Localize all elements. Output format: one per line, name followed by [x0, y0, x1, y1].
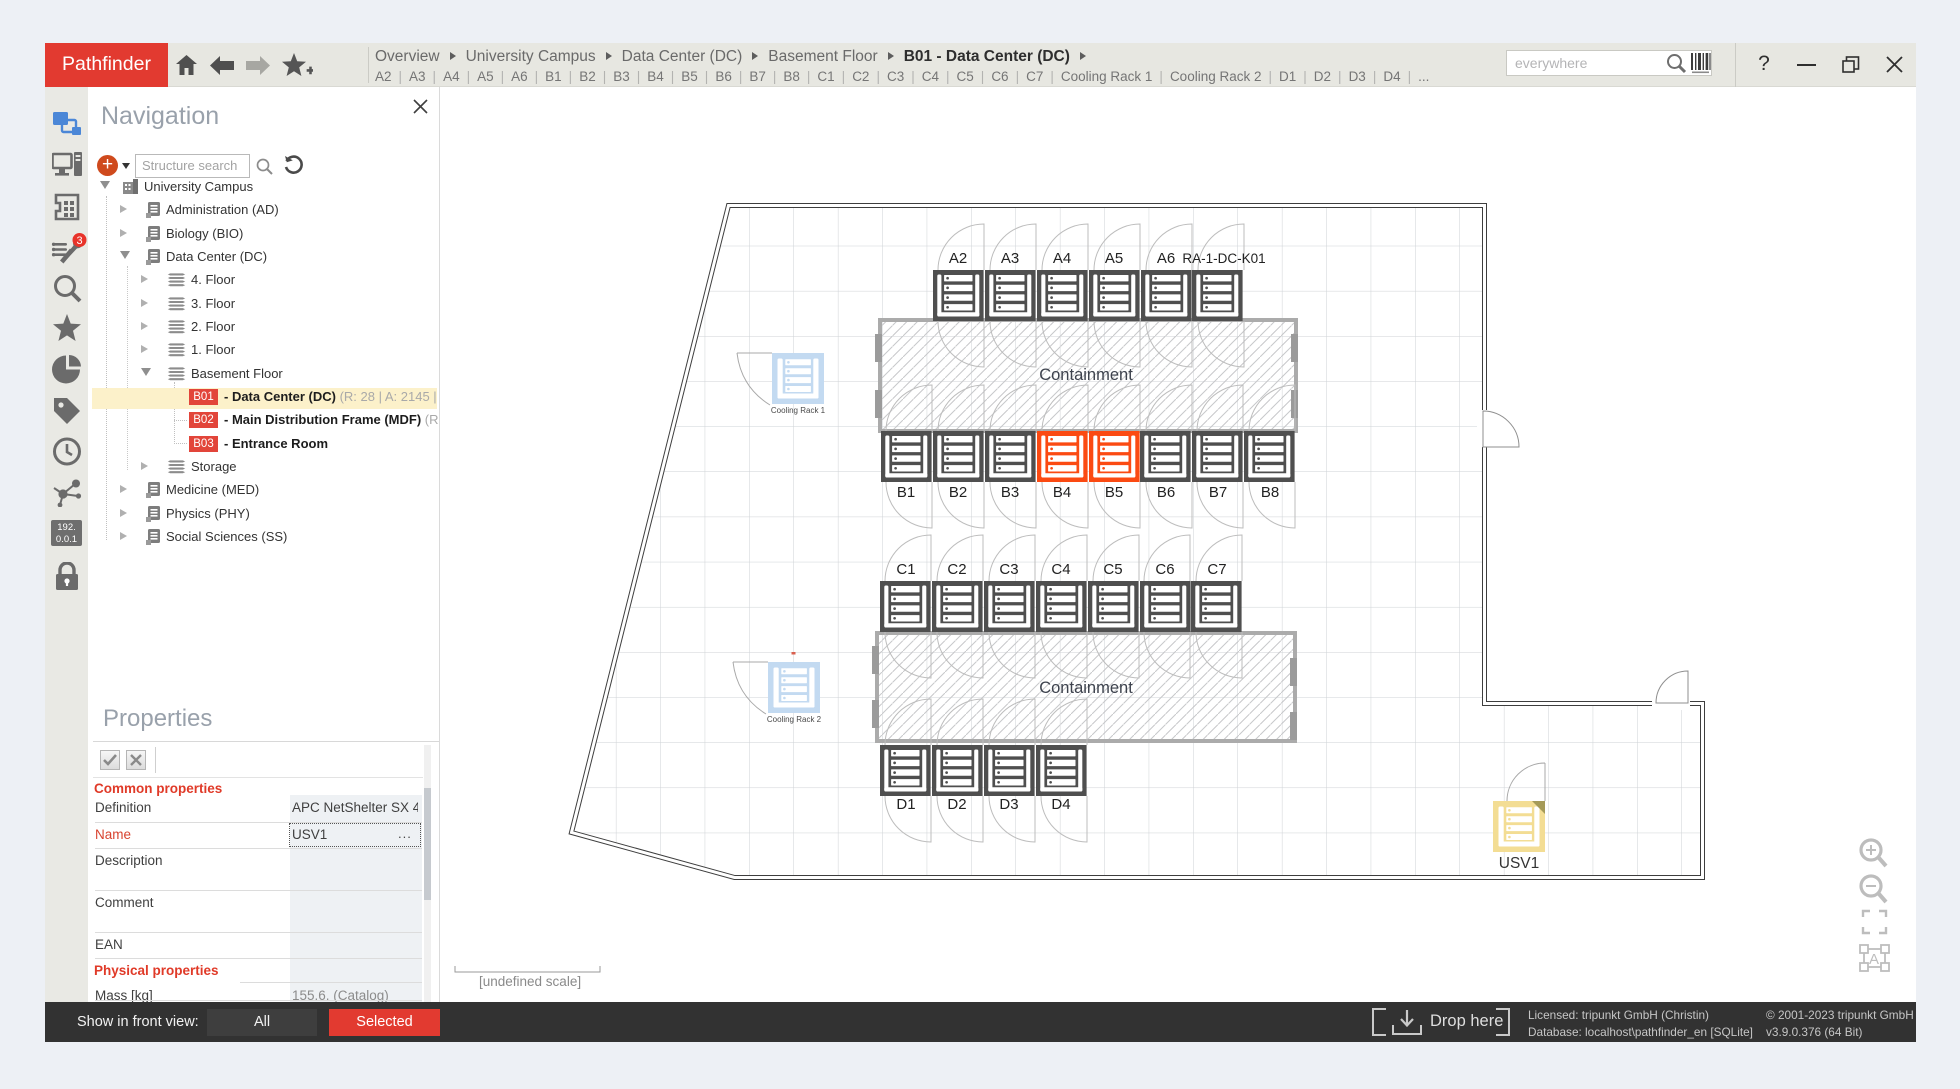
svg-text:B7: B7 — [1209, 484, 1227, 501]
svg-text:C4: C4 — [1051, 561, 1070, 578]
svg-text:C2: C2 — [947, 561, 966, 578]
svg-text:A: A — [1869, 951, 1879, 968]
svg-text:A2: A2 — [949, 250, 967, 267]
svg-text:Cooling Rack 2: Cooling Rack 2 — [767, 715, 822, 724]
svg-text:B5: B5 — [1105, 484, 1123, 501]
svg-text:A4: A4 — [1053, 250, 1071, 267]
svg-text:Cooling Rack 1: Cooling Rack 1 — [771, 406, 826, 415]
svg-text:C5: C5 — [1103, 561, 1122, 578]
svg-text:B8: B8 — [1261, 484, 1279, 501]
svg-text:B6: B6 — [1157, 484, 1175, 501]
svg-text:A6: A6 — [1157, 250, 1175, 267]
svg-text:[undefined scale]: [undefined scale] — [479, 974, 581, 989]
svg-text:Containment: Containment — [1039, 679, 1133, 697]
svg-text:C6: C6 — [1155, 561, 1174, 578]
svg-text:C3: C3 — [999, 561, 1018, 578]
svg-text:B4: B4 — [1053, 484, 1071, 501]
svg-text:3: 3 — [76, 235, 82, 247]
svg-text:A3: A3 — [1001, 250, 1019, 267]
svg-text:B3: B3 — [1001, 484, 1019, 501]
svg-text:USV1: USV1 — [1499, 855, 1540, 872]
svg-text:Containment: Containment — [1039, 366, 1133, 384]
svg-text:C7: C7 — [1207, 561, 1226, 578]
svg-text:D1: D1 — [896, 796, 915, 813]
svg-text:D4: D4 — [1051, 796, 1070, 813]
svg-text:B2: B2 — [949, 484, 967, 501]
svg-text:A5: A5 — [1105, 250, 1123, 267]
svg-text:C1: C1 — [896, 561, 915, 578]
svg-text:B1: B1 — [897, 484, 915, 501]
svg-text:RA-1-DC-K01: RA-1-DC-K01 — [1182, 251, 1265, 266]
svg-text:D2: D2 — [947, 796, 966, 813]
svg-text:D3: D3 — [999, 796, 1018, 813]
